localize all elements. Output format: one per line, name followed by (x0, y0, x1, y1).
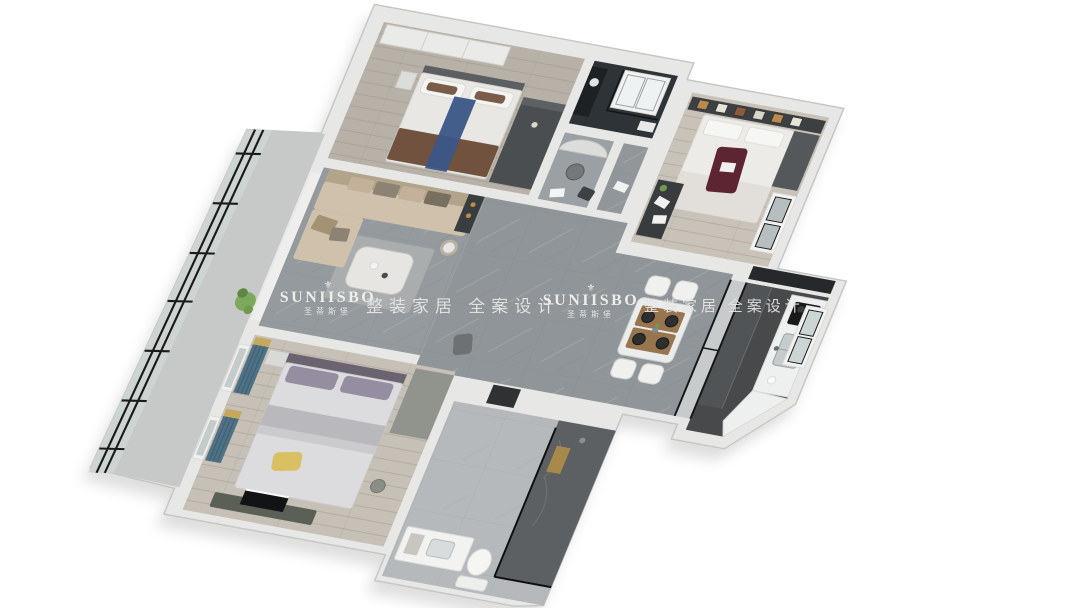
desk-paper2 (652, 215, 667, 224)
rendered-floorplan-image: ⚜ SUNIISBO 圣蒂斯堡 整装家居 全案设计 ⚜ SUNIISBO 圣蒂斯… (0, 0, 1080, 608)
floorplan-scene (0, 0, 1080, 608)
yellow-pillow (271, 452, 303, 471)
burgundy-chair-cushion (719, 162, 736, 172)
paper (549, 188, 565, 197)
apartment-model (67, 0, 919, 608)
hall-chair (453, 333, 473, 356)
